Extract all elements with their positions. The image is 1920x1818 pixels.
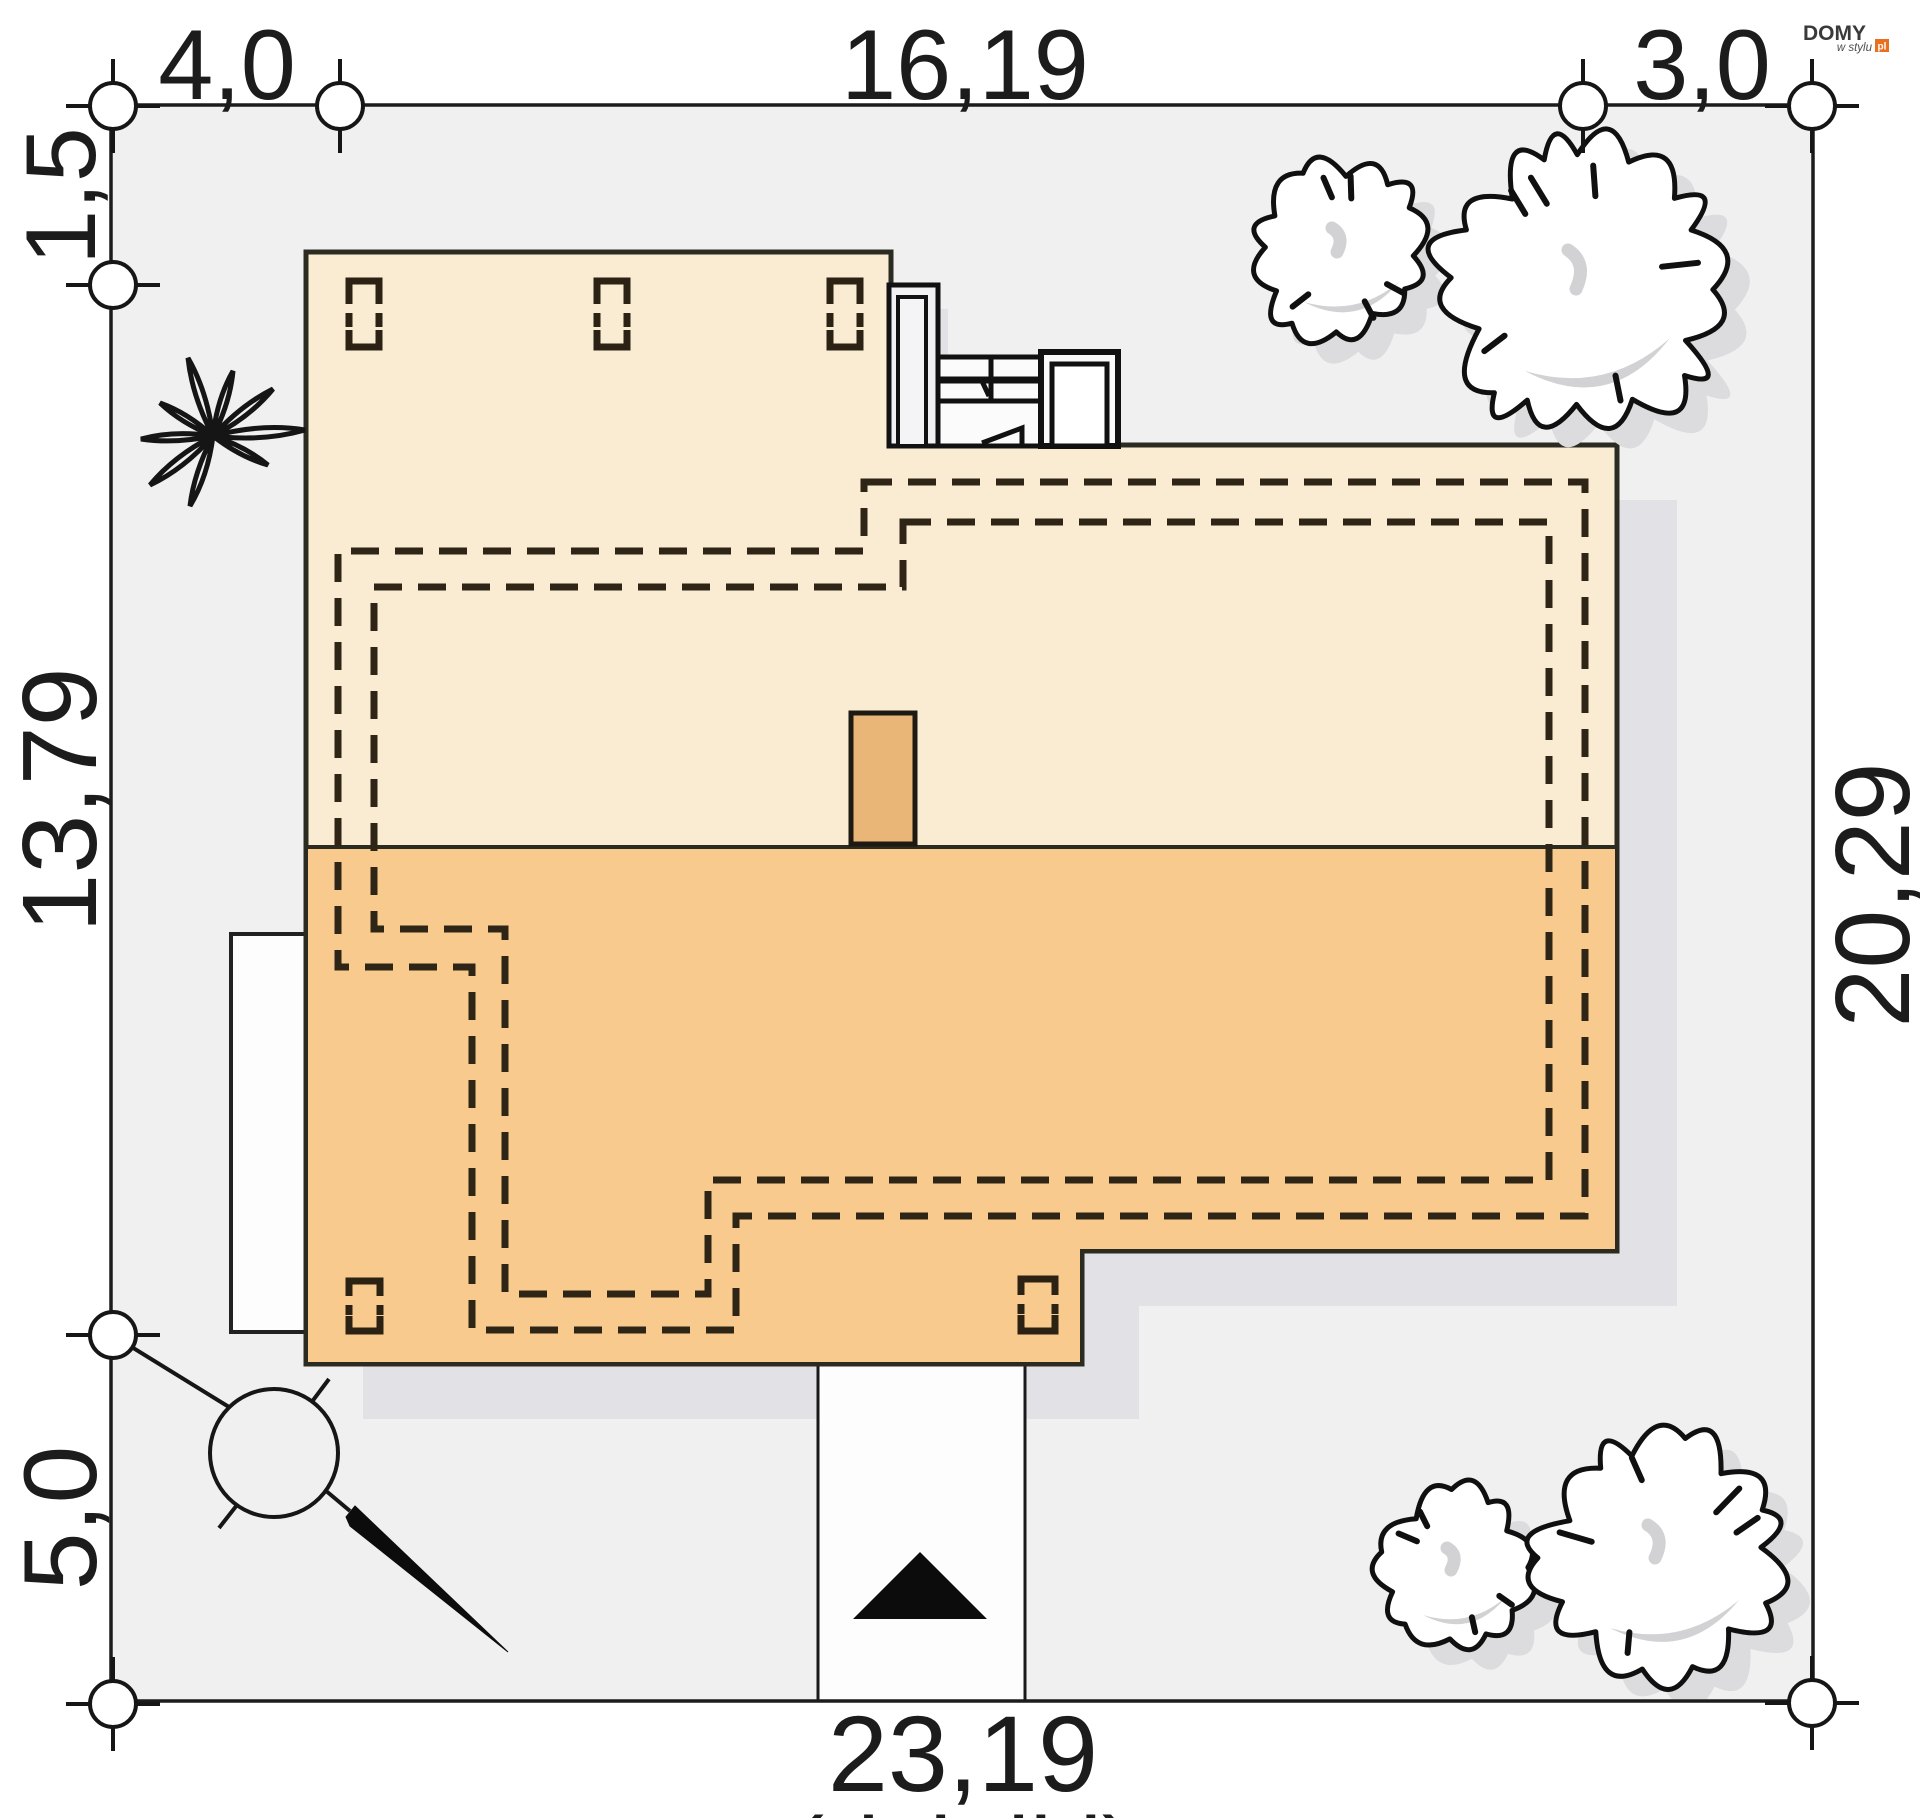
- svg-text:(działki): (działki): [791, 1797, 1135, 1818]
- svg-text:20,29: 20,29: [1814, 762, 1920, 1027]
- svg-text:13,79: 13,79: [1, 667, 119, 932]
- svg-text:3,0: 3,0: [1633, 9, 1771, 120]
- svg-text:16,19: 16,19: [841, 9, 1089, 120]
- svg-text:5,0: 5,0: [3, 1446, 119, 1591]
- svg-text:23,19: 23,19: [828, 1693, 1098, 1814]
- svg-text:1,5: 1,5: [5, 127, 116, 265]
- svg-text:w stylu: w stylu: [1837, 42, 1873, 54]
- svg-text:4,0: 4,0: [158, 9, 296, 120]
- svg-text:pl: pl: [1878, 42, 1887, 53]
